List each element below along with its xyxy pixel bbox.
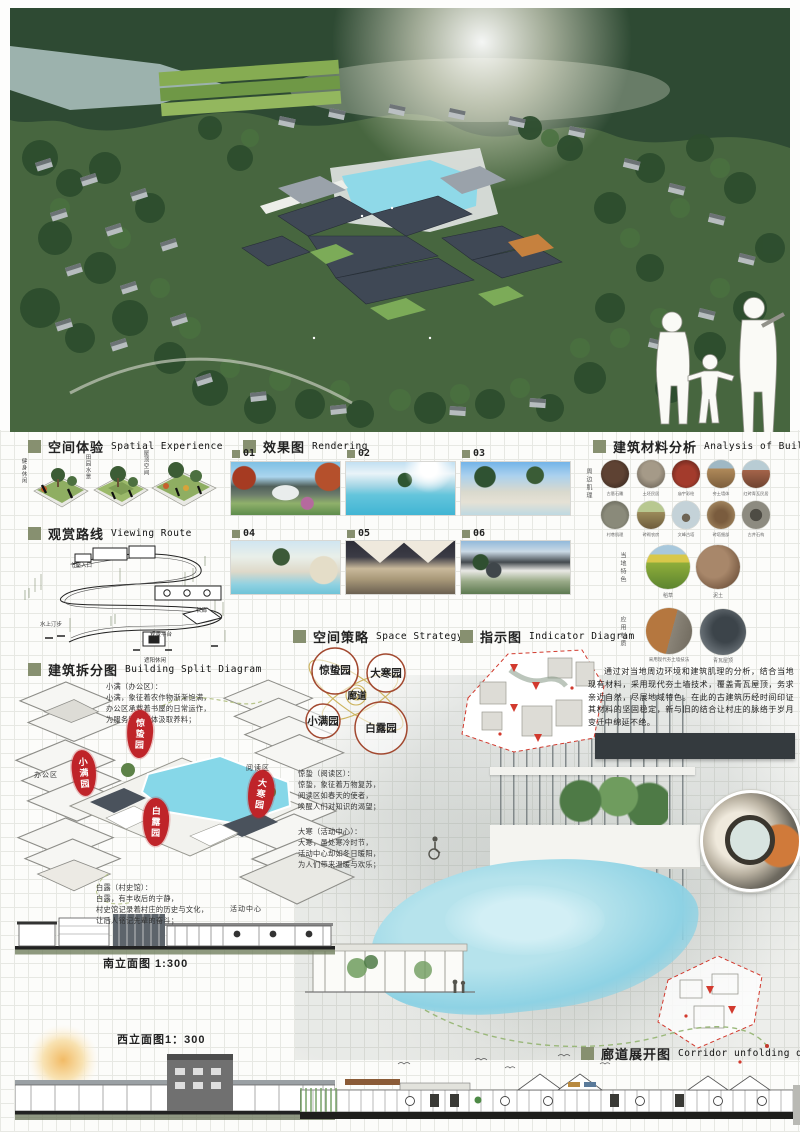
section-title-zh: 效果图 [263,437,305,456]
material-featured-tile-roof [700,609,746,655]
corridor-bamboo-green [543,777,668,825]
material-photo-10 [742,501,770,529]
section-bullet [28,440,41,453]
section-title-en: Analysis of Building Materials [704,441,800,452]
section-title-en: Space Strategy [376,631,463,642]
render-id-02: 02 [347,448,370,459]
render-thumb-01 [231,462,340,515]
section-materials: 建筑材料分析 Analysis of Building Materials [593,437,800,456]
material-photo-8 [672,501,700,529]
south-elevation-label: 南立面图 1:300 [103,955,188,971]
material-caption-8: 文峰古塔 [668,532,704,538]
material-caption-2: 土坯民居 [633,491,669,497]
material-photo-2 [637,460,665,488]
edge-strip [793,1085,800,1125]
bubble-xiaoman: 小满园 [307,714,339,729]
material-caption-4: 夯土墙体 [703,491,739,497]
viewing-route-diagram [15,538,240,660]
thumb-number: 06 [473,528,485,539]
thumb-bullet [347,450,355,458]
thumb-number: 01 [243,448,255,459]
materials-paragraph: 通过对当地周边环境和建筑肌理的分析，结合当地现有材料，采用现代夯土墙技术，覆盖青… [588,666,794,730]
featured-caption-straw: 稻草 [650,592,686,599]
material-photo-1 [601,460,629,488]
featured-caption-earth: 泥土 [700,592,736,599]
section-title-zh: 空间策略 [313,627,369,646]
zone-label-office: 办公区 [34,770,58,780]
material-featured-earth [696,545,740,589]
section-bullet [28,663,41,676]
material-photo-6 [601,501,629,529]
render-id-06: 06 [462,528,485,539]
presentation-board: 空间体验 Spatial Experience 观赏路线 Viewing Rou… [0,0,800,1132]
hero-render-image [10,8,790,432]
section-bullet [593,440,606,453]
render-id-01: 01 [232,448,255,459]
material-caption-3: 庙宇彩绘 [668,491,704,497]
axon-label-1: 健身休闲 [20,458,26,484]
material-caption-10: 古井石构 [738,532,774,538]
gable-shape [354,541,406,563]
materials-side-label-texture: 周边肌理 [584,468,593,500]
axon-thumb-fitness [28,455,92,515]
corridor-dark-roof [595,733,795,759]
hero-render-svg [10,8,790,432]
round-window [725,815,775,865]
thumb-number: 05 [358,528,370,539]
material-photo-5 [742,460,770,488]
section-bullet [293,630,306,643]
route-label-platform: 观景平台 [150,630,172,638]
materials-side-label-applied: 应用材质 [618,616,627,648]
bubble-dahan: 大寒园 [370,666,402,681]
bubble-jingzhe: 惊蛰园 [319,663,351,678]
render-thumb-06 [461,541,570,594]
route-label-entrance: 书屋入口 [70,561,92,569]
detail-inset-circle [700,790,800,892]
space-strategy-diagram [292,645,467,770]
render-thumb-02 [346,462,455,515]
section-title-en: Corridor unfolding diagram [678,1048,800,1059]
thumb-bullet [462,450,470,458]
bubble-bailu: 白露园 [365,721,397,736]
section-title-zh: 廊道展开图 [601,1044,671,1063]
material-caption-7: 砖砌农房 [633,532,669,538]
note-jingzhe: 惊蛰（阅读区）： 惊蛰，象征着万物复苏， 阅读区如春天的使者， 唤醒人们对知识的… [298,768,430,813]
axon-thumb-roof [146,448,220,514]
stamp-text: 小满园 [76,756,92,790]
material-caption-1: 古厝石雕 [597,491,633,497]
featured-caption-rammed: 采用现代夯土墙技法 [632,657,706,663]
section-bullet [581,1047,594,1060]
material-featured-straw [646,545,690,589]
section-title-zh: 建筑材料分析 [613,437,697,456]
featured-caption-roof: 青瓦屋顶 [705,657,741,664]
material-featured-rammed-earth [646,608,692,654]
thumb-number: 03 [473,448,485,459]
material-photo-3 [672,460,700,488]
stamp-text: 白露园 [149,805,163,838]
stamp-text: 惊蛰园 [133,717,148,751]
section-title-zh: 建筑拆分图 [48,660,118,679]
thumb-bullet [232,530,240,538]
west-elevation-label: 西立面图1：300 [117,1031,205,1047]
thumb-number: 02 [358,448,370,459]
thumb-bullet [347,530,355,538]
material-caption-9: 砖塔细部 [703,532,739,538]
material-caption-5: 红砖青瓦民居 [738,491,774,497]
route-label-shade: 遮阳休闲 [144,656,166,664]
section-space-strategy: 空间策略 Space Strategy [293,627,463,646]
material-photo-9 [707,501,735,529]
section-corridor: 廊道展开图 Corridor unfolding diagram [581,1044,800,1063]
bubble-corridor: 廊道 [347,688,366,702]
render-thumb-04 [231,541,340,594]
route-label-stepping: 水上汀步 [40,620,62,628]
corridor-beam [490,767,695,775]
axon-thumb-water [88,452,152,514]
render-thumb-05 [346,541,455,594]
material-photo-7 [637,501,665,529]
thumb-bullet [232,450,240,458]
note-dahan: 大寒（活动中心）： 大寒，虽处寒冷时节， 活动中心却如冬日暖阳， 为人们带来温暖… [298,826,430,871]
thumb-bullet [462,530,470,538]
render-id-03: 03 [462,448,485,459]
stamp-text: 大寒园 [252,777,269,811]
materials-side-label-local: 当地特色 [618,552,627,584]
render-id-05: 05 [347,528,370,539]
thumb-number: 04 [243,528,255,539]
render-thumb-03 [461,462,570,515]
note-bailu: 白露（村史馆）： 白露，有丰收后的宁静， 村史馆记录着村庄的历史与文化， 让后人… [96,882,266,927]
render-id-04: 04 [232,528,255,539]
route-label-corridor: 长廊 [196,606,207,614]
section-title-en: Building Split Diagram [125,664,262,675]
material-photo-4 [707,460,735,488]
material-caption-6: 村巷肌理 [597,532,633,538]
gable-shape [402,541,454,563]
